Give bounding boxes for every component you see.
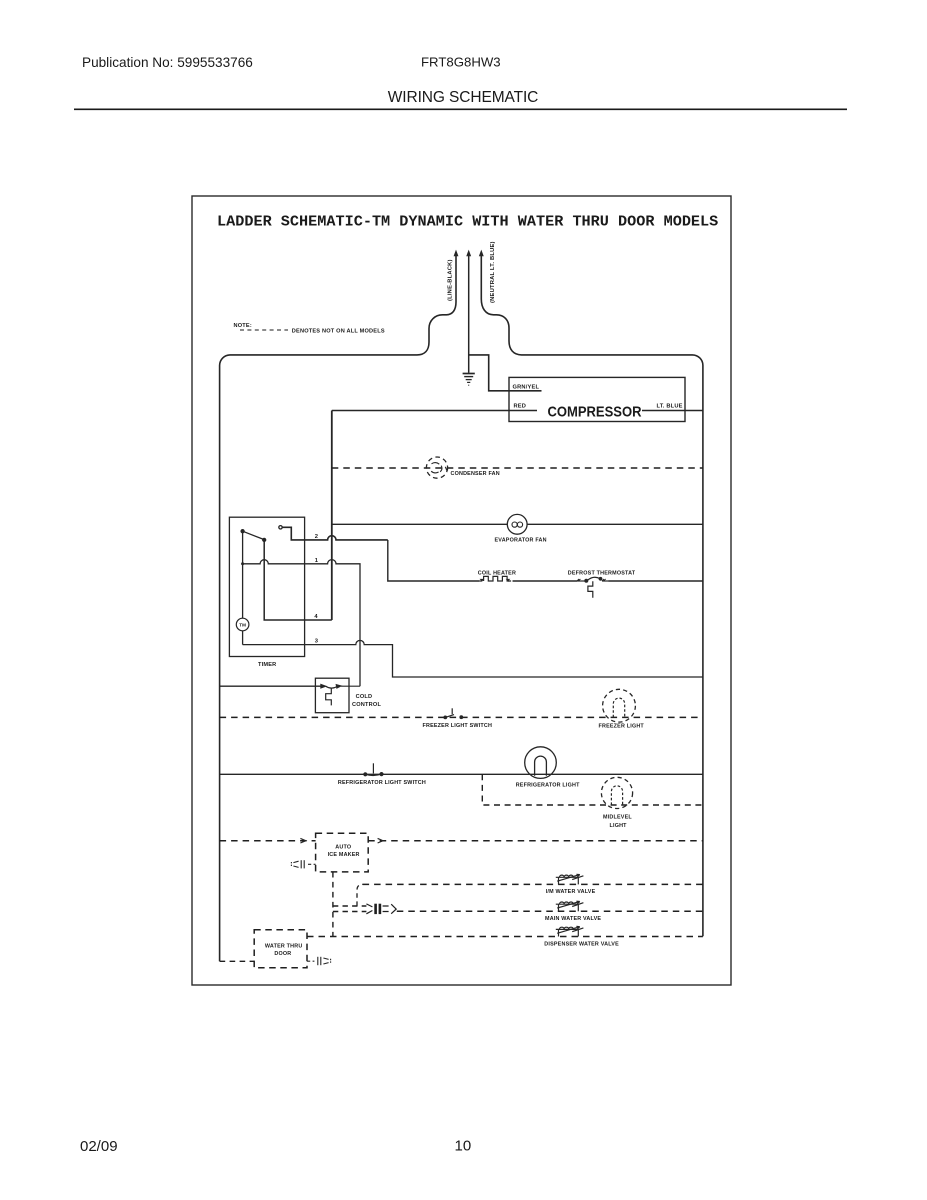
- svg-text:10: 10: [455, 1138, 472, 1155]
- svg-text:COIL HEATER: COIL HEATER: [478, 570, 516, 576]
- svg-text:MAIN WATER VALVE: MAIN WATER VALVE: [545, 916, 601, 922]
- svg-text:FREEZER LIGHT: FREEZER LIGHT: [599, 724, 645, 730]
- svg-text:FREEZER LIGHT SWITCH: FREEZER LIGHT SWITCH: [423, 723, 493, 729]
- svg-text:TM: TM: [239, 623, 246, 628]
- svg-text:02/09: 02/09: [80, 1138, 118, 1155]
- svg-text:WATER THRU: WATER THRU: [265, 944, 303, 950]
- svg-text:TIMER: TIMER: [258, 662, 276, 668]
- svg-text:DISPENSER WATER VALVE: DISPENSER WATER VALVE: [544, 941, 619, 947]
- svg-text:DENOTES NOT ON ALL MODELS: DENOTES NOT ON ALL MODELS: [292, 328, 385, 334]
- svg-text:DEFROST THERMOSTAT: DEFROST THERMOSTAT: [568, 571, 636, 577]
- svg-text:CONDENSER FAN: CONDENSER FAN: [451, 471, 500, 477]
- svg-text:Publication No: 5995533766: Publication No: 5995533766: [82, 55, 253, 70]
- svg-text:3: 3: [315, 639, 319, 645]
- svg-text:(NEUTRAL LT. BLUE): (NEUTRAL LT. BLUE): [490, 241, 496, 303]
- svg-text:WIRING SCHEMATIC: WIRING SCHEMATIC: [388, 89, 539, 106]
- svg-text:LADDER SCHEMATIC-TM DYNAMIC WI: LADDER SCHEMATIC-TM DYNAMIC WITH WATER T…: [217, 213, 718, 231]
- svg-text:EVAPORATOR FAN: EVAPORATOR FAN: [495, 538, 547, 544]
- svg-text:AUTO: AUTO: [335, 845, 351, 851]
- svg-text:REFRIGERATOR LIGHT: REFRIGERATOR LIGHT: [516, 782, 580, 788]
- svg-text:GRN/YEL: GRN/YEL: [513, 384, 540, 390]
- svg-text:NOTE:: NOTE:: [234, 323, 252, 329]
- svg-text:REFRIGERATOR LIGHT SWITCH: REFRIGERATOR LIGHT SWITCH: [338, 780, 426, 786]
- svg-text:2: 2: [315, 534, 318, 540]
- svg-text:COMPRESSOR: COMPRESSOR: [548, 404, 642, 421]
- svg-text:COLD: COLD: [356, 694, 373, 700]
- svg-text:1: 1: [315, 558, 319, 564]
- svg-text:I/M WATER VALVE: I/M WATER VALVE: [546, 889, 596, 895]
- svg-text:FRT8G8HW3: FRT8G8HW3: [421, 55, 501, 70]
- svg-text:LIGHT: LIGHT: [610, 823, 628, 829]
- svg-text:4: 4: [314, 614, 318, 620]
- svg-text:RED: RED: [514, 403, 527, 409]
- svg-text:LT. BLUE: LT. BLUE: [657, 403, 683, 409]
- svg-text:ICE MAKER: ICE MAKER: [328, 852, 360, 858]
- svg-text:(LINE-BLACK): (LINE-BLACK): [448, 259, 454, 301]
- svg-text:CONTROL: CONTROL: [352, 702, 381, 708]
- svg-text:MIDLEVEL: MIDLEVEL: [603, 814, 632, 820]
- svg-text:DOOR: DOOR: [274, 951, 291, 957]
